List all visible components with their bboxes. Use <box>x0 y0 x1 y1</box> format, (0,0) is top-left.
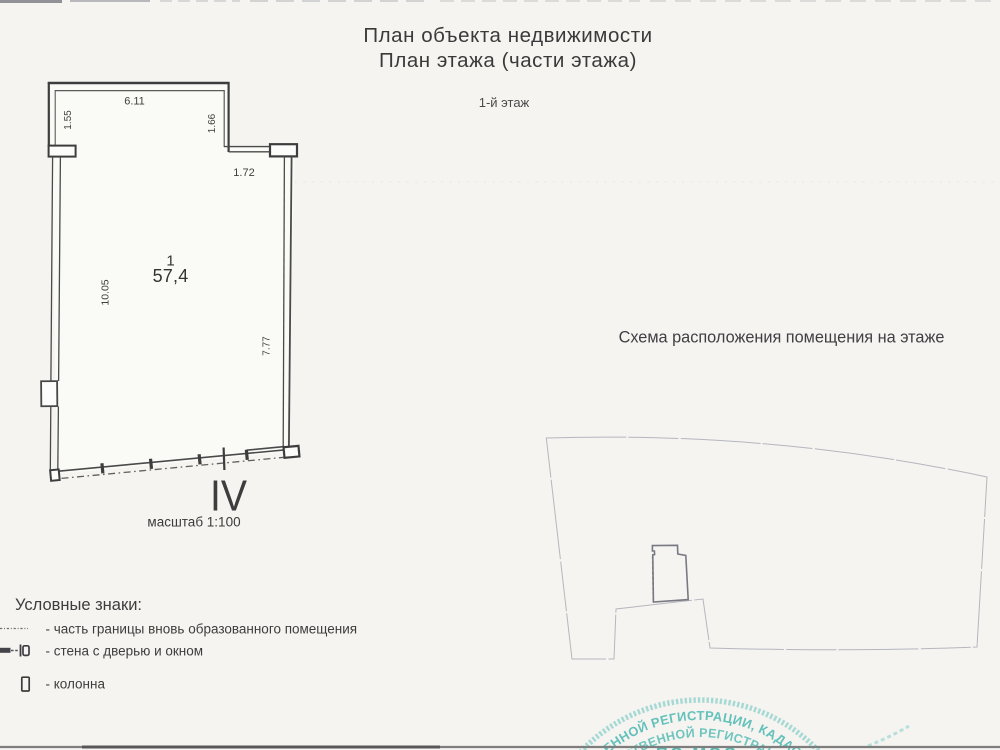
svg-text:7.77: 7.77 <box>262 336 273 356</box>
svg-text:масштаб 1:100: масштаб 1:100 <box>147 515 240 530</box>
svg-text:1.72: 1.72 <box>233 167 254 179</box>
svg-text:1.55: 1.55 <box>63 110 74 130</box>
svg-text:6.11: 6.11 <box>124 96 145 108</box>
svg-text:- колонна: - колонна <box>46 677 106 692</box>
svg-text:IV: IV <box>210 472 248 521</box>
svg-text:Схема расположения помещения н: Схема расположения помещения на этаже <box>619 329 945 347</box>
svg-text:57,4: 57,4 <box>153 266 189 286</box>
svg-text:- часть границы вновь образова: - часть границы вновь образованного поме… <box>46 622 358 637</box>
svg-text:1.66: 1.66 <box>207 113 218 133</box>
svg-text:10.05: 10.05 <box>99 279 111 305</box>
svg-text:План объекта недвижимости: План объекта недвижимости <box>363 24 652 47</box>
svg-text:Условные знаки:: Условные знаки: <box>15 596 142 614</box>
svg-text:- стена с дверью и окном: - стена с дверью и окном <box>46 644 204 659</box>
svg-text:1-й этаж: 1-й этаж <box>479 95 530 110</box>
svg-text:План этажа (части этажа): План этажа (части этажа) <box>379 49 637 72</box>
